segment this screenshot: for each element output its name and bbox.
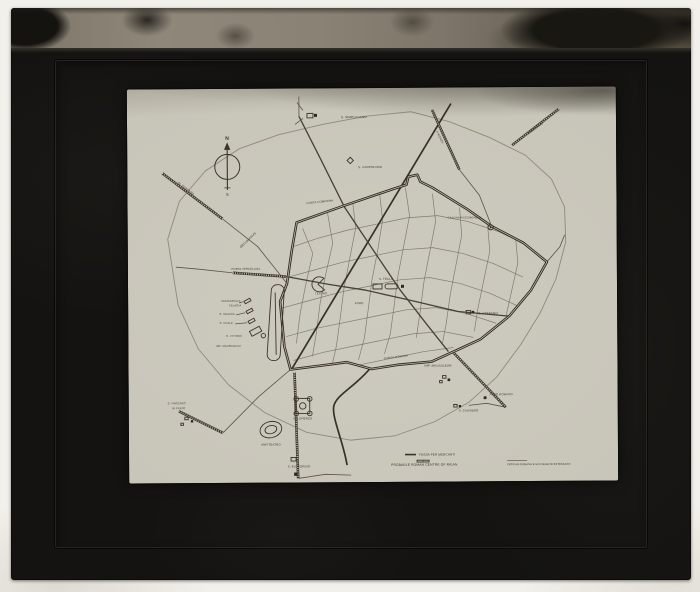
map-labels-group: NSS. SIMPLICIANOS. CARPOFOROPORTA COMASI… bbox=[166, 114, 571, 469]
map-label-s-carpoforo: S. CARPOFORO bbox=[358, 165, 383, 169]
map-label-compass-s: S bbox=[226, 192, 229, 197]
map-label-compass-n: N bbox=[225, 136, 229, 142]
map-label-imp-mausoleum-w: IMP. MAUSOLEUM bbox=[216, 344, 241, 348]
map-photographic-print: NSS. SIMPLICIANOS. CARPOFOROPORTA COMASI… bbox=[127, 87, 618, 484]
binding-tape bbox=[11, 8, 691, 48]
map-label-s-vitale: S. VITALE bbox=[220, 321, 233, 325]
map-label-foro: FORO bbox=[355, 301, 364, 305]
map-label-s-valeria: S. VALERIA bbox=[219, 312, 235, 316]
compass-rose bbox=[215, 142, 240, 190]
map-label-imp-mausoleum-e: IMP. MAUSOLEUM bbox=[424, 364, 452, 368]
map-label-ermagora-1: ERMAGORA E bbox=[222, 299, 241, 303]
map-label-porta-romana: PORTA ROMANA bbox=[384, 353, 408, 360]
map-label-s-lorenzo: S. LORENZO bbox=[293, 416, 313, 420]
amphitheatre-icon bbox=[258, 419, 283, 440]
map-label-porta-comasina: PORTA COMASINA bbox=[306, 198, 333, 205]
map-label-s-tecla: S. TECLA bbox=[379, 277, 393, 281]
san-simpliciano-icon bbox=[295, 102, 317, 124]
map-label-ermagora-2: PELAGIA bbox=[229, 303, 241, 307]
map-label-porta-vercellina: PORTA VERCELLINA bbox=[232, 267, 261, 271]
binding-tape-edge bbox=[11, 48, 691, 53]
map-label-s-vittore: S. VITTORE bbox=[226, 334, 242, 338]
map-label-s-vincenzo-1: S. VINCENZO bbox=[168, 401, 186, 405]
map-label-arco-romano: ARCO ROMANO bbox=[490, 392, 514, 396]
east-cluster-icons bbox=[440, 376, 451, 383]
map-label-s-eustorgio: S. EUSTORGIO bbox=[288, 464, 311, 468]
map-label-legend-fossa: FOSSA PER MERCANTI bbox=[419, 452, 455, 456]
san-carpoforo-icon bbox=[347, 157, 353, 163]
map-label-caption-subtitle: CERCHIA ROMANA E SUCCESSIVE ESTENSIONI bbox=[507, 463, 571, 466]
map-label-al-verbano: AL VERBANO bbox=[177, 181, 196, 197]
map-label-anfiteatro: ANFITEATRO bbox=[261, 443, 281, 447]
map-label-s-vincenzo-2: IN PRATO bbox=[172, 406, 185, 410]
map-label-s-simpliciano: S. SIMPLICIANO bbox=[341, 115, 367, 119]
photograph-of-lantern-slide: NSS. SIMPLICIANOS. CARPOFOROPORTA COMASI… bbox=[0, 0, 700, 592]
slide-mount: NSS. SIMPLICIANOS. CARPOFOROPORTA COMASI… bbox=[11, 8, 691, 580]
map-label-s-calimero: S. CALIMERO bbox=[459, 408, 479, 412]
map-label-teatro: TEATRO bbox=[315, 291, 328, 295]
map-label-a-bergamo: A BERGAMO bbox=[527, 121, 545, 135]
map-label-cascina: CASCINA POZZOBONELLI bbox=[448, 216, 482, 219]
map-svg: NSS. SIMPLICIANOS. CARPOFOROPORTA COMASI… bbox=[127, 87, 618, 484]
map-label-caption-title: PROBABLE ROMAN CENTRE OF MILAN bbox=[391, 462, 458, 466]
south-east-icons bbox=[454, 396, 487, 407]
map-label-s-stefano: S. STEFANO bbox=[478, 311, 498, 315]
